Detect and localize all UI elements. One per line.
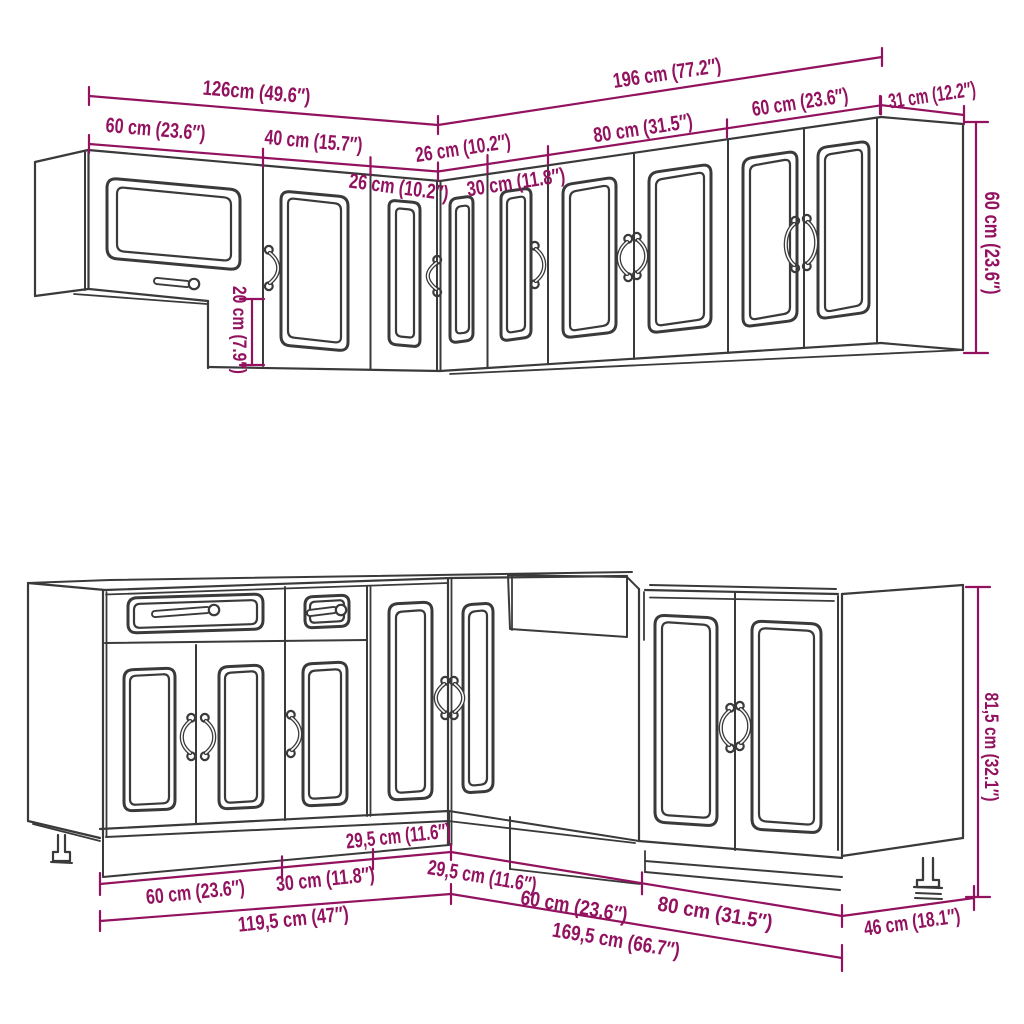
- svg-text:81,5 cm (32.1″): 81,5 cm (32.1″): [980, 693, 1001, 802]
- svg-text:20 cm (7.9″): 20 cm (7.9″): [228, 286, 249, 374]
- svg-text:60 cm (23.6″): 60 cm (23.6″): [980, 192, 1003, 295]
